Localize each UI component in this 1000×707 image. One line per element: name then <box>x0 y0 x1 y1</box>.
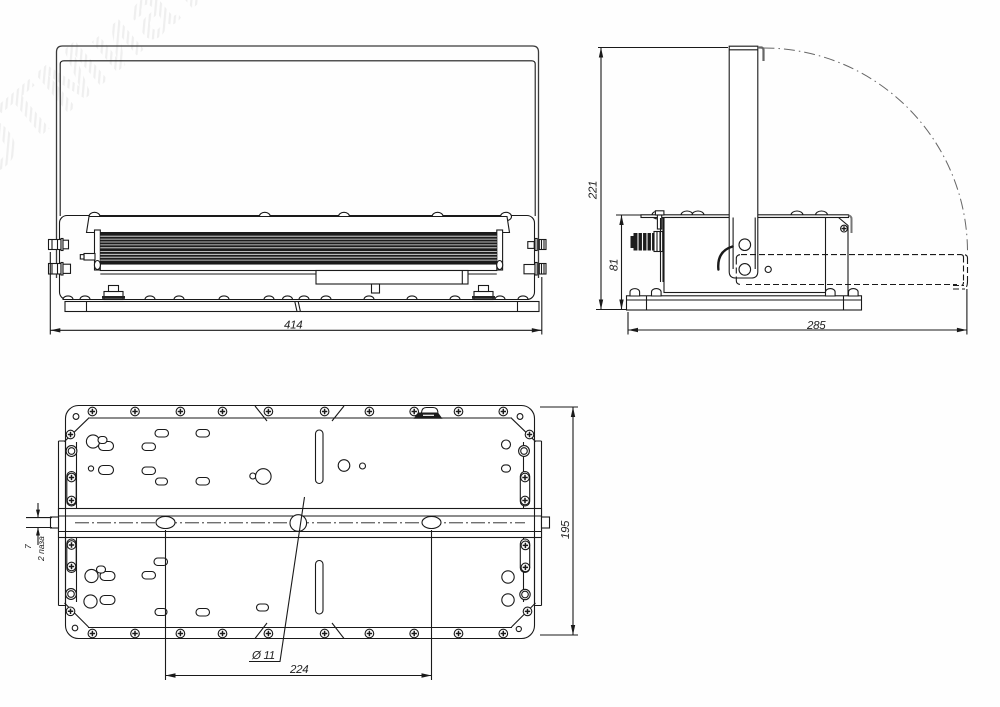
svg-text:195: 195 <box>560 520 572 539</box>
svg-text:7: 7 <box>23 544 33 549</box>
svg-text:221: 221 <box>588 181 600 200</box>
svg-text:224: 224 <box>289 664 308 676</box>
svg-text:285: 285 <box>806 320 826 332</box>
svg-text:81: 81 <box>609 259 621 271</box>
svg-text:2 паза: 2 паза <box>36 536 46 562</box>
svg-text:Ø 11: Ø 11 <box>251 650 275 662</box>
svg-text:414: 414 <box>284 320 302 332</box>
svg-text:ЭТМиат: ЭТМиат <box>0 0 222 194</box>
